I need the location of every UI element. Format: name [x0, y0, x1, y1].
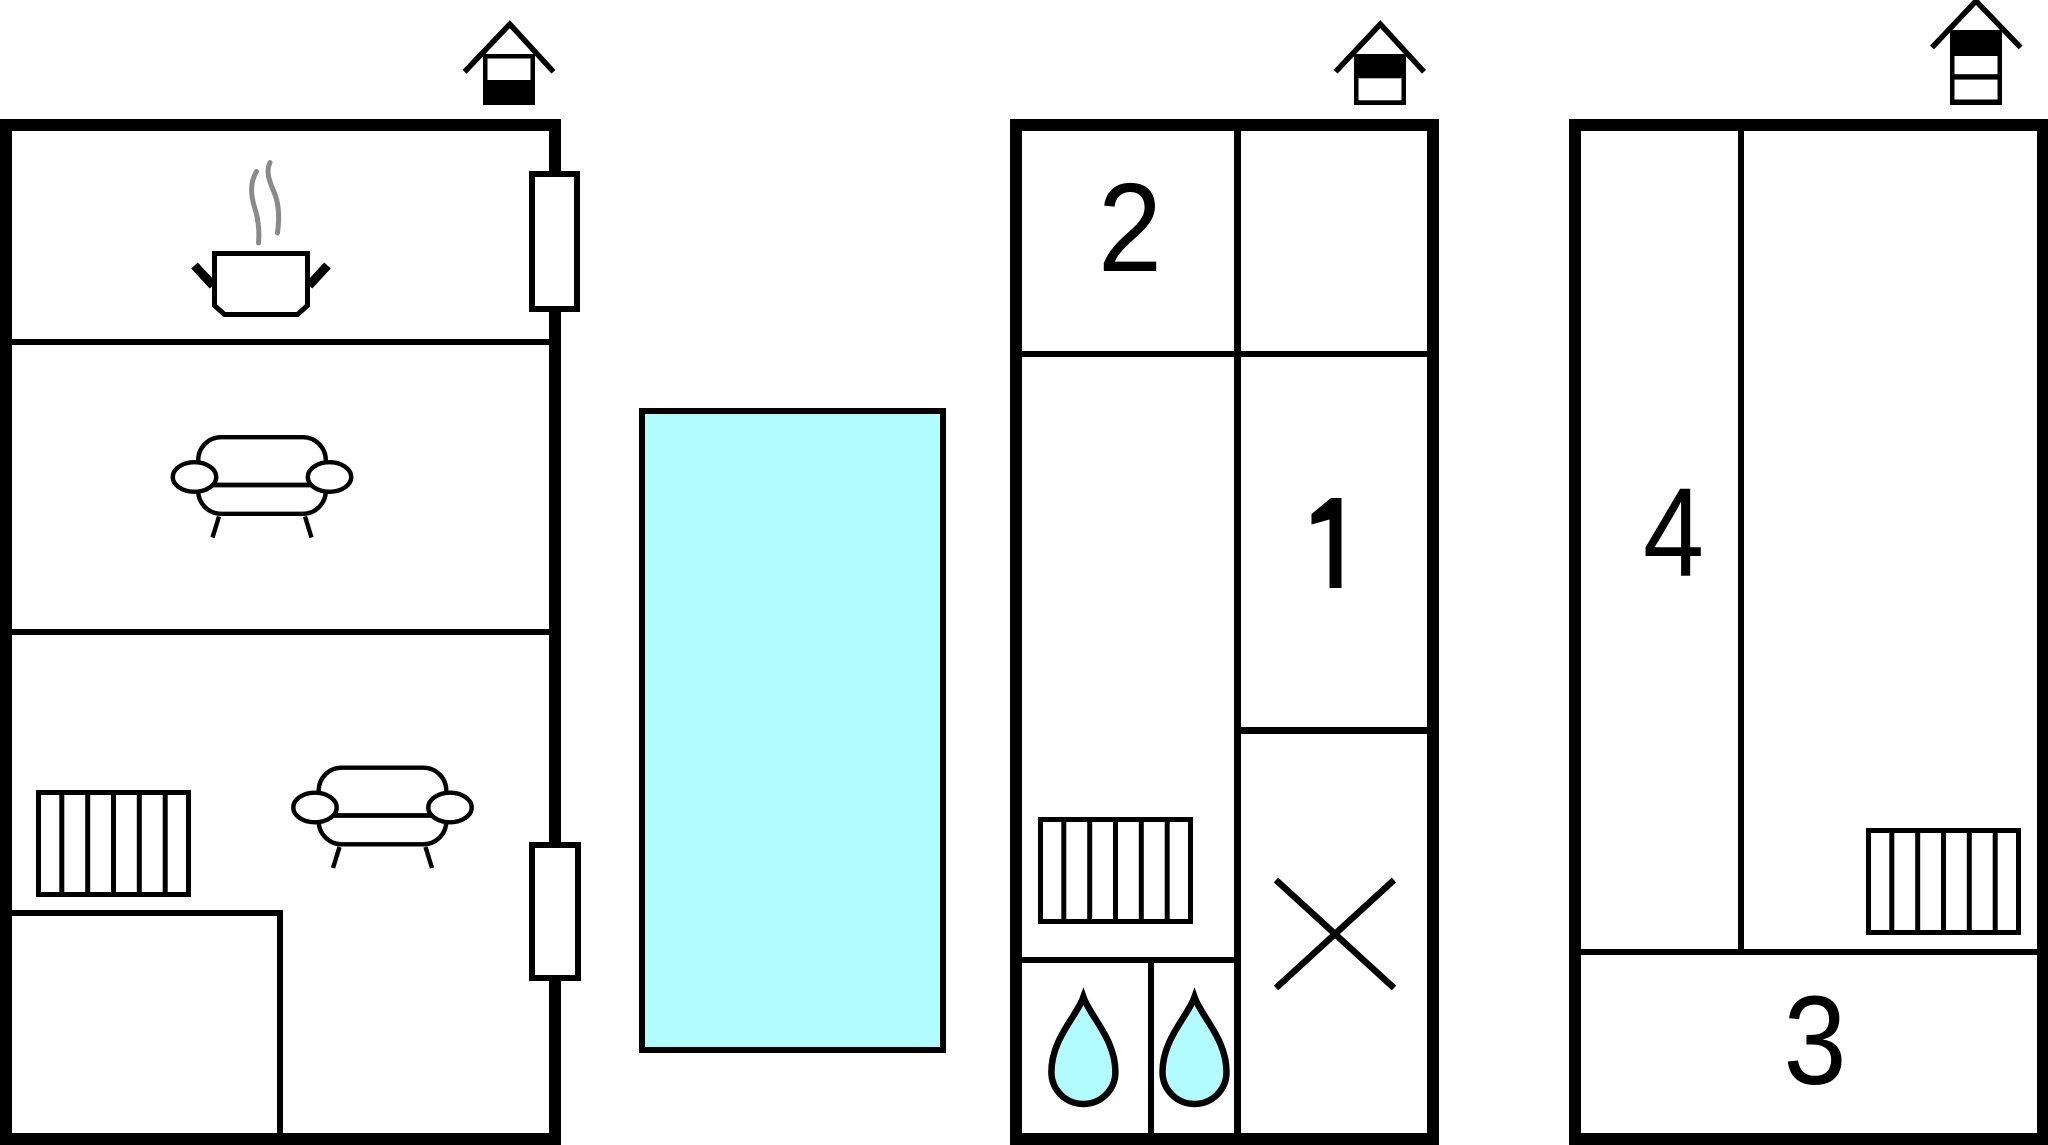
svg-text:3: 3 [1784, 970, 1847, 1111]
svg-text:2: 2 [1098, 157, 1162, 298]
svg-text:4: 4 [1643, 462, 1704, 603]
